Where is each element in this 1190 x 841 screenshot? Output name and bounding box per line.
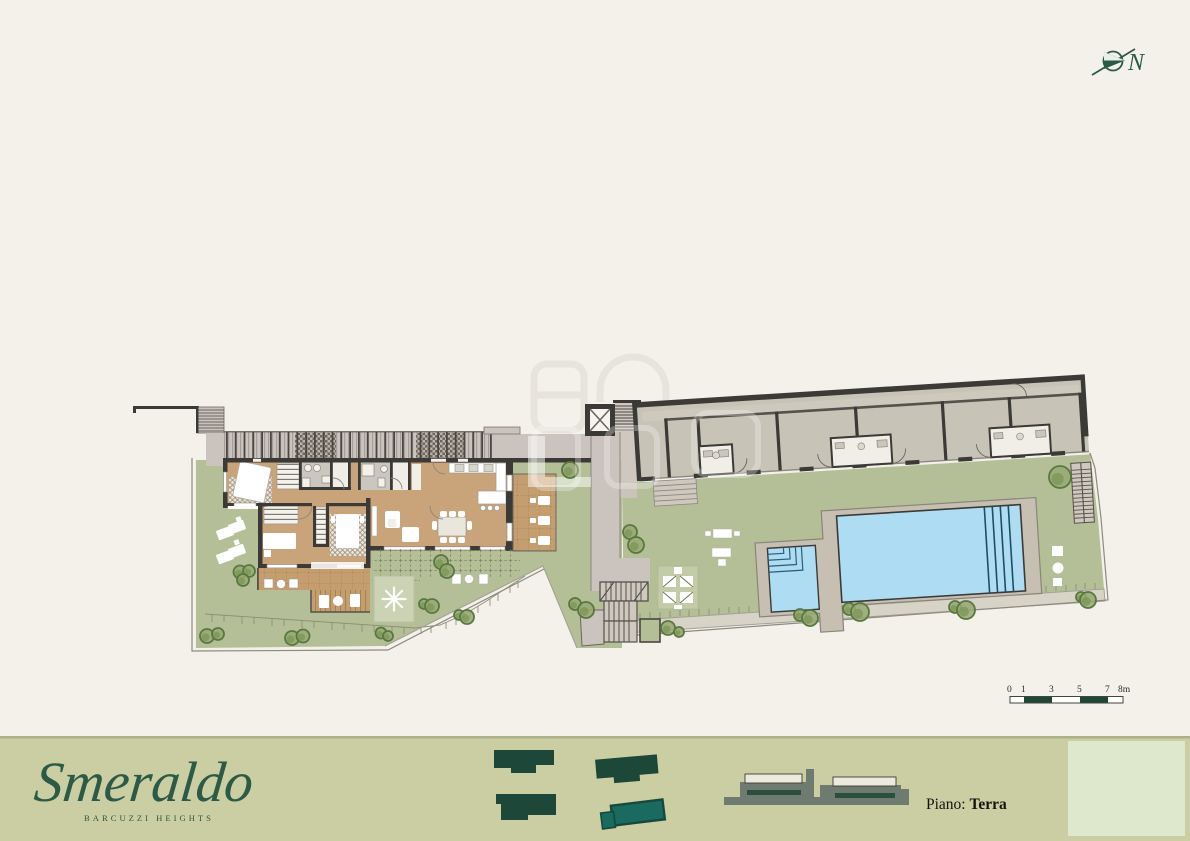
svg-text:8m: 8m [1118,685,1131,695]
svg-text:N: N [1127,50,1146,76]
svg-text:Piano: Terra: Piano: Terra [926,796,1007,813]
svg-text:5: 5 [1077,685,1082,695]
svg-text:7: 7 [1105,685,1110,695]
svg-text:BARCUZZI HEIGHTS: BARCUZZI HEIGHTS [84,813,214,823]
svg-text:0: 0 [1007,685,1012,695]
svg-text:Smeraldo: Smeraldo [32,751,257,814]
svg-text:1: 1 [1021,685,1026,695]
svg-text:3: 3 [1049,685,1054,695]
